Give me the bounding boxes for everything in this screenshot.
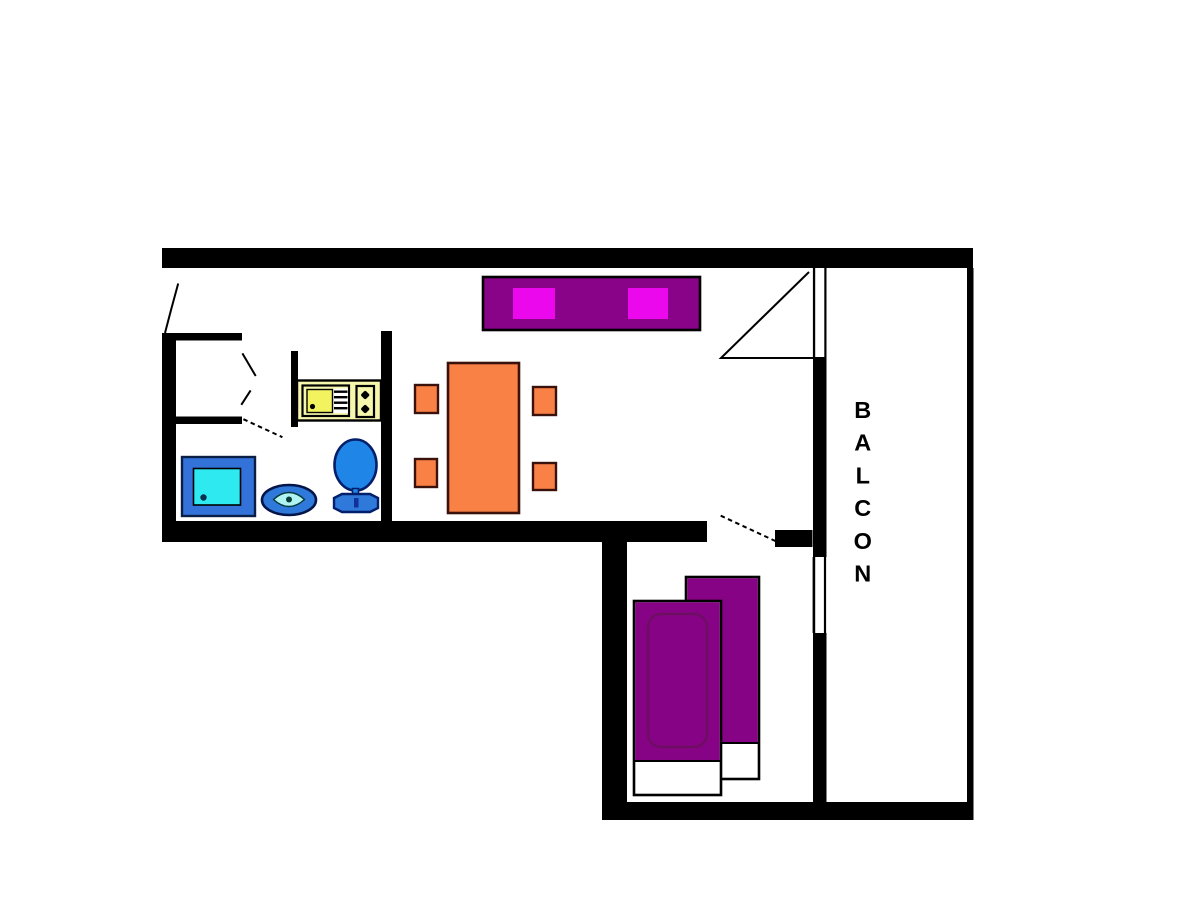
svg-text:A: A <box>854 430 871 456</box>
svg-text:O: O <box>854 528 872 554</box>
svg-text:L: L <box>856 462 870 488</box>
svg-text:B: B <box>854 397 871 423</box>
svg-text:C: C <box>854 495 871 521</box>
svg-text:N: N <box>854 561 871 587</box>
